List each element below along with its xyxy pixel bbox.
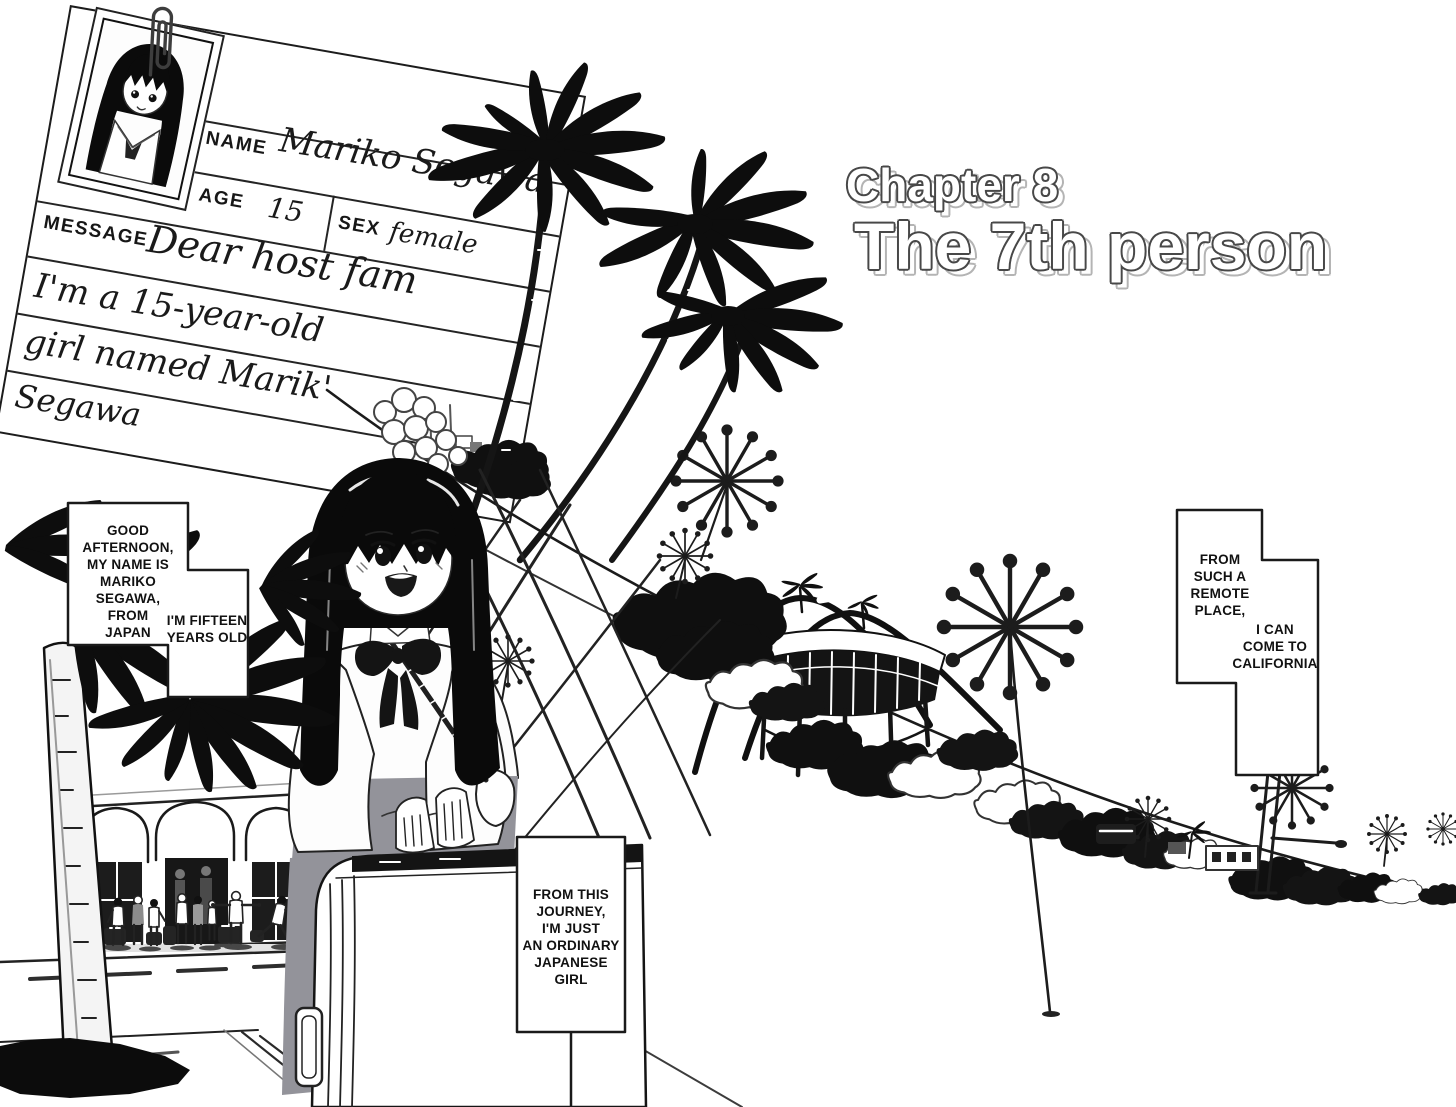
caption-age: I'M FIFTEEN YEARS OLD — [163, 612, 251, 646]
palm-shadow — [0, 1038, 190, 1098]
caption-california: I CAN COME TO CALIFORNIA — [1232, 621, 1318, 672]
caption-remote-place: FROM SUCH A REMOTE PLACE, — [1179, 551, 1261, 619]
chapter-title: The 7th person — [854, 208, 1327, 284]
chapter-number: Chapter 8 — [846, 158, 1058, 212]
caption-journey: FROM THIS JOURNEY, I'M JUST AN ORDINARY … — [519, 886, 623, 988]
suitcase-handle-bracket — [296, 1008, 322, 1086]
manga-page: NAME AGE SEX MESSAGE Mariko Segawa 15 fe… — [0, 0, 1456, 1107]
